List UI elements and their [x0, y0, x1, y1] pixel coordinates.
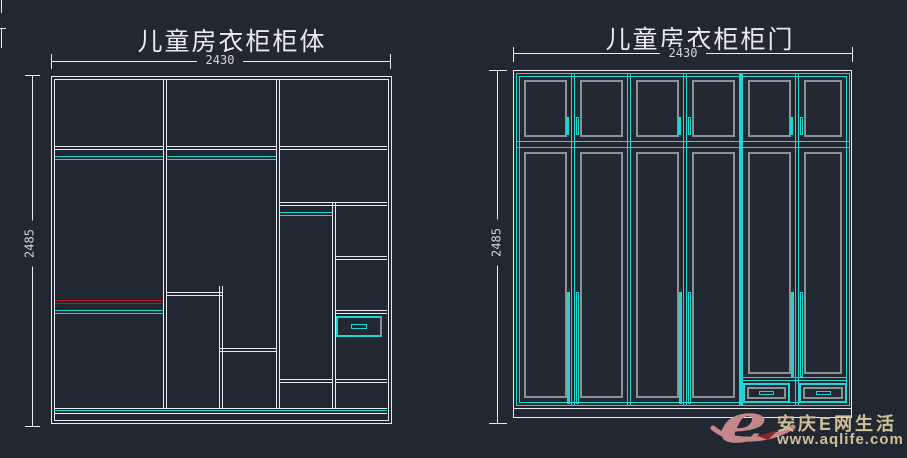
watermark-site-url: www.aqlife.com [777, 431, 904, 448]
watermark: e 安庆E网生活 www.aqlife.com [0, 0, 907, 458]
cad-canvas: { "colors": { "background": "#222831", "… [0, 0, 907, 458]
